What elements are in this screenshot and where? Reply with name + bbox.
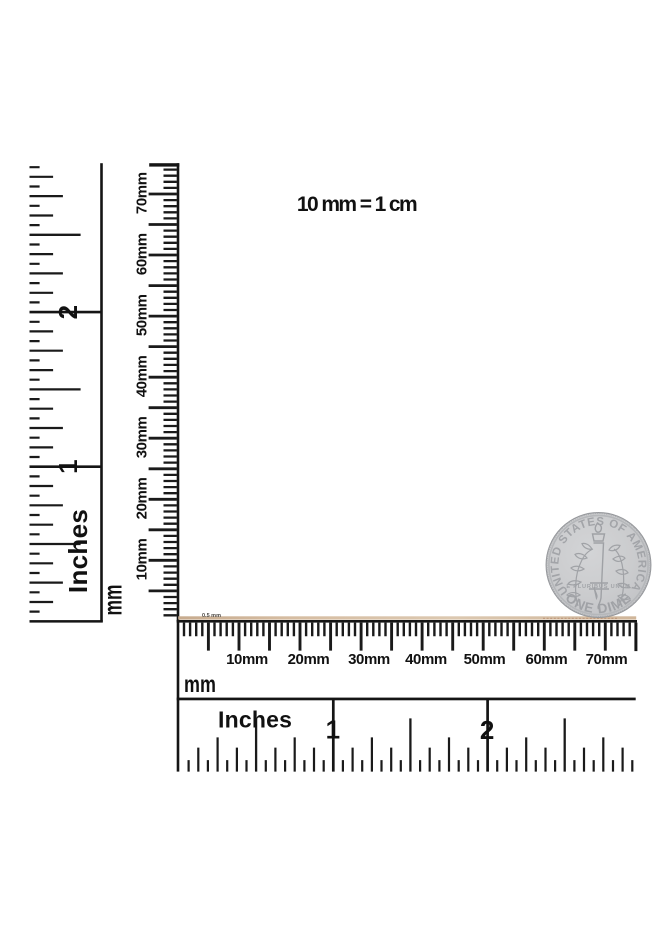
svg-text:20mm: 20mm (288, 651, 330, 668)
svg-text:40mm: 40mm (133, 355, 150, 397)
svg-text:1: 1 (53, 459, 83, 473)
svg-text:70mm: 70mm (586, 651, 628, 668)
svg-text:Inches: Inches (218, 707, 292, 733)
svg-text:30mm: 30mm (348, 651, 390, 668)
svg-text:60mm: 60mm (526, 651, 568, 668)
svg-text:50mm: 50mm (464, 651, 506, 668)
svg-text:20mm: 20mm (133, 478, 150, 520)
svg-text:70mm: 70mm (133, 172, 150, 214)
svg-text:1: 1 (326, 714, 340, 744)
svg-text:2: 2 (480, 715, 494, 745)
svg-text:mm: mm (184, 672, 216, 698)
svg-text:60mm: 60mm (133, 233, 150, 275)
svg-text:2: 2 (53, 305, 83, 319)
svg-text:50mm: 50mm (133, 294, 150, 336)
svg-text:10mm: 10mm (226, 651, 268, 668)
svg-text:Inches: Inches (63, 509, 93, 593)
svg-text:40mm: 40mm (405, 651, 447, 668)
svg-text:mm: mm (98, 585, 127, 616)
svg-text:10mm: 10mm (133, 539, 150, 581)
svg-text:0.5 mm: 0.5 mm (202, 613, 221, 619)
svg-text:10 mm = 1 cm: 10 mm = 1 cm (297, 193, 417, 216)
svg-text:30mm: 30mm (133, 416, 150, 458)
